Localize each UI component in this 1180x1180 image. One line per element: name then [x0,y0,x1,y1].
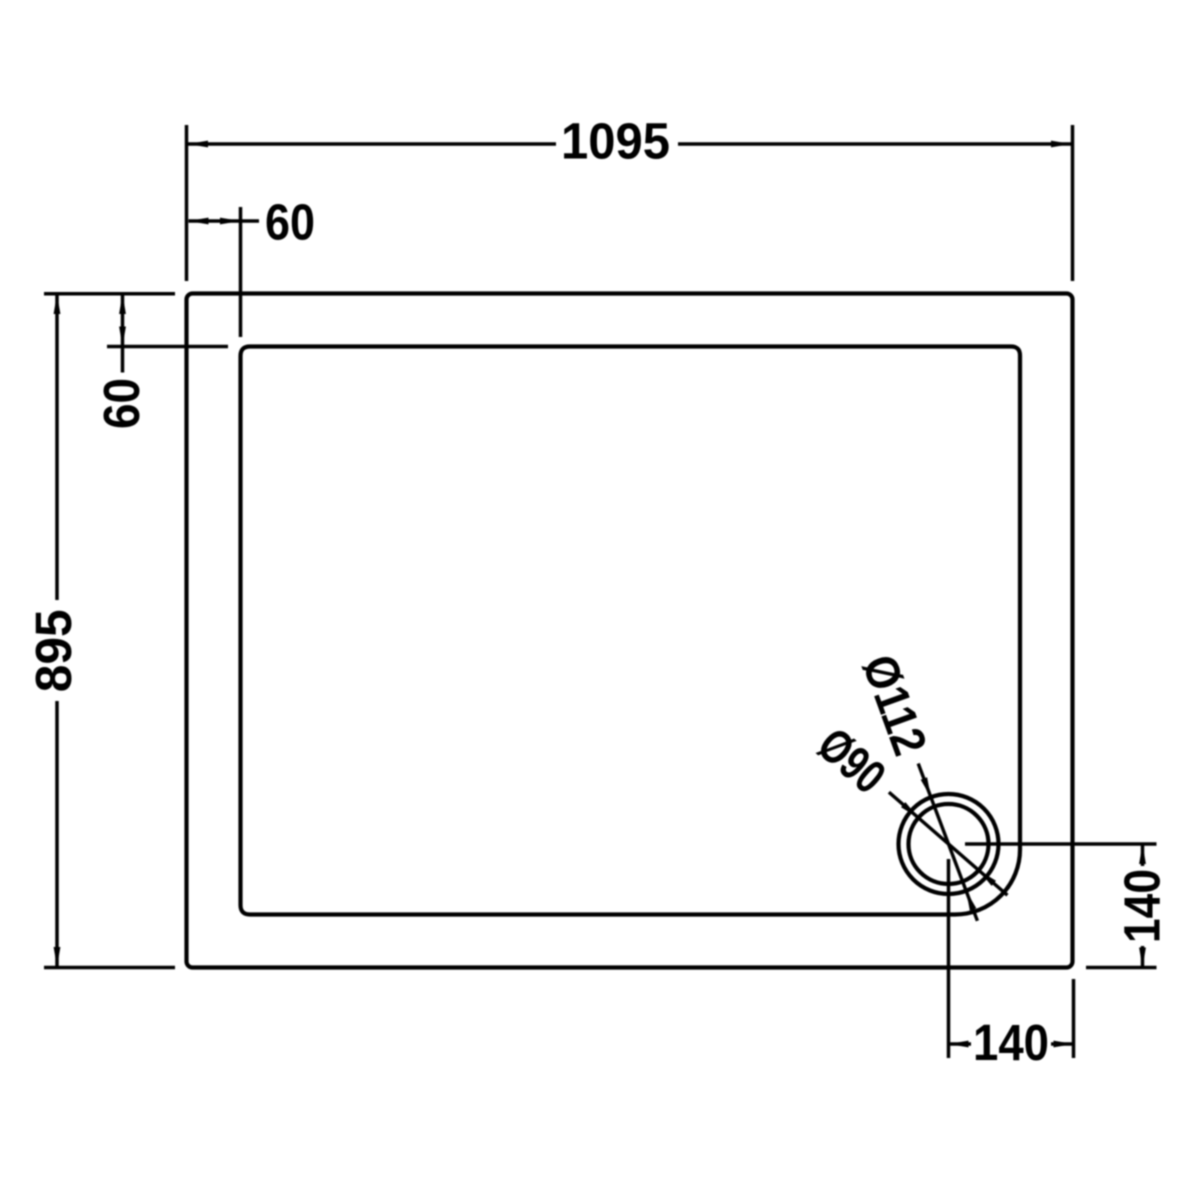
svg-text:60: 60 [93,378,150,429]
svg-text:140: 140 [973,1014,1049,1071]
svg-text:60: 60 [265,194,315,251]
svg-text:1095: 1095 [561,113,670,170]
svg-text:895: 895 [25,609,82,692]
svg-text:140: 140 [1114,869,1171,943]
